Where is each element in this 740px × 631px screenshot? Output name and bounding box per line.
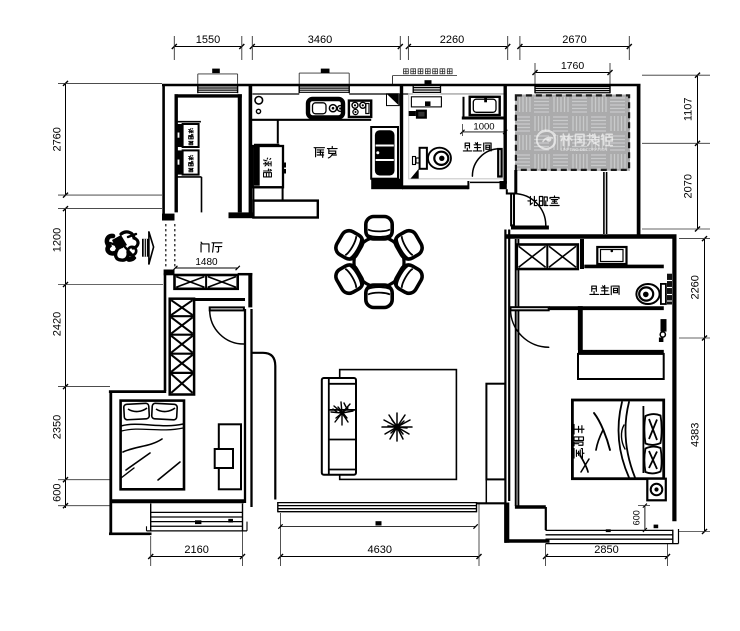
svg-text:2160: 2160 [184, 544, 208, 556]
svg-text:1000: 1000 [473, 122, 494, 133]
svg-text:2070: 2070 [683, 174, 695, 198]
svg-text:2260: 2260 [440, 34, 464, 46]
svg-text:2350: 2350 [52, 415, 64, 439]
svg-text:2260: 2260 [690, 275, 702, 299]
svg-text:1200: 1200 [52, 228, 64, 252]
svg-text:1760: 1760 [561, 60, 585, 72]
svg-text:600: 600 [632, 510, 642, 525]
svg-text:4383: 4383 [690, 423, 702, 447]
svg-text:4630: 4630 [368, 544, 392, 556]
svg-text:2760: 2760 [52, 127, 64, 151]
svg-text:2670: 2670 [562, 34, 586, 46]
svg-text:LINFENG DECORATION: LINFENG DECORATION [561, 147, 608, 152]
svg-text:1550: 1550 [196, 34, 220, 46]
svg-text:1107: 1107 [683, 97, 695, 121]
svg-text:1480: 1480 [195, 257, 218, 268]
svg-text:600: 600 [52, 484, 64, 502]
svg-text:3460: 3460 [308, 34, 332, 46]
svg-text:2850: 2850 [594, 544, 618, 556]
svg-text:2420: 2420 [52, 312, 64, 336]
